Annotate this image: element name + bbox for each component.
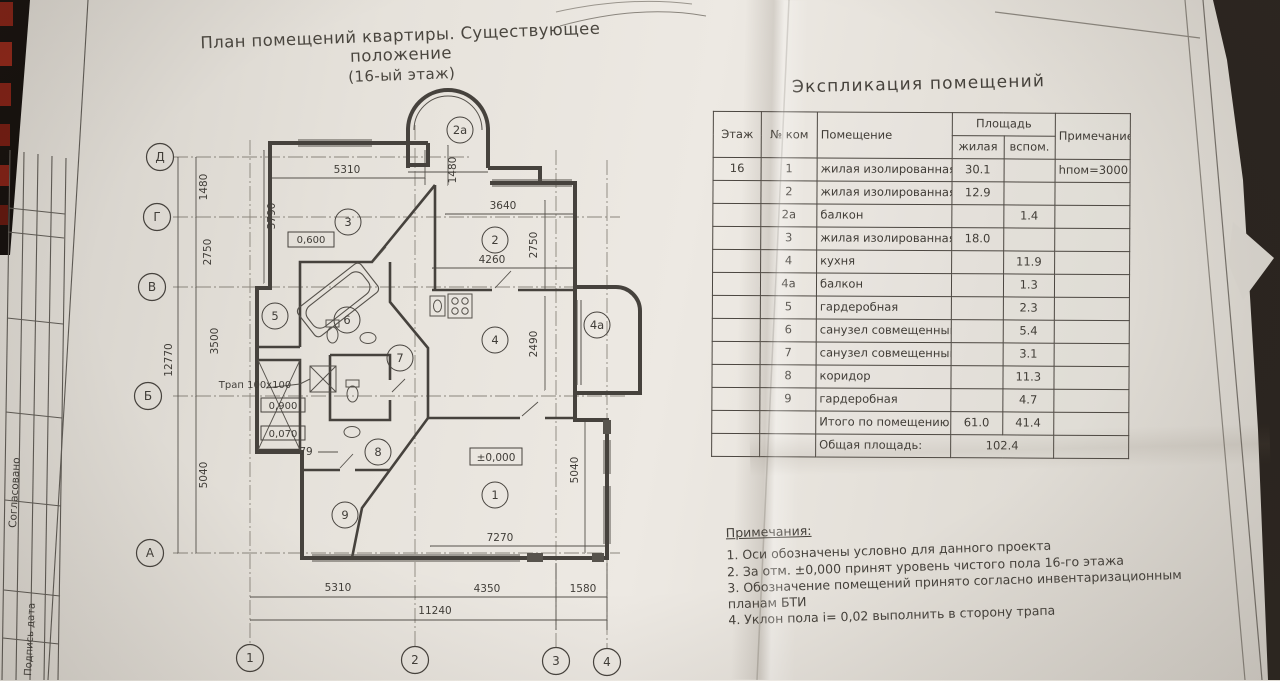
room-1-label: 1 <box>491 488 498 502</box>
cell-note <box>1055 251 1130 274</box>
cell-aux <box>1003 228 1055 251</box>
stamp-approved-label: Согласовано <box>7 457 23 528</box>
dim-left-1: 1480 <box>198 174 210 201</box>
cell-aux: 1.3 <box>1003 274 1055 297</box>
axis-col-3: 3 <box>552 654 560 668</box>
cell-room: жилая изолированная <box>817 158 952 182</box>
cell-living <box>951 389 1003 412</box>
cell-aux: 3.1 <box>1003 343 1055 366</box>
axis-col-1: 1 <box>246 651 254 665</box>
header-living: жилая <box>952 136 1004 159</box>
level-zero: ±0,000 <box>477 452 516 464</box>
cell-room: санузел совмещенный <box>816 342 951 366</box>
floor-plan: Д Г В Б А 1 2 3 4 3 2а 2 5 6 7 4 4а 8 <box>135 90 641 676</box>
wall-piers <box>527 420 611 562</box>
room-9-label: 9 <box>341 508 348 522</box>
room-6-label: 6 <box>343 313 350 327</box>
level-bath2: 0,070 <box>269 429 298 440</box>
cell-note <box>1054 366 1129 389</box>
cell-note <box>1054 389 1129 412</box>
room-2-label: 2 <box>491 233 498 247</box>
cell-note <box>1054 343 1129 366</box>
dim-right-h: 5040 <box>569 457 581 484</box>
cell-note: hпом=3000 <box>1055 159 1130 182</box>
dim-room3-depth: 3790 <box>266 203 278 230</box>
trap-label: Трап 100х100 <box>218 380 291 391</box>
room-5-label: 5 <box>271 309 278 323</box>
room-8-label: 8 <box>374 445 381 459</box>
dim-room2-h: 2750 <box>528 232 540 259</box>
cell-room: гардеробная <box>816 296 951 320</box>
cell-room: балкон <box>816 273 951 297</box>
cell-living: 12.9 <box>952 182 1004 205</box>
cell-room: гардеробная <box>816 388 951 412</box>
room-3-label: 3 <box>344 215 351 229</box>
header-room: Помещение <box>817 112 952 159</box>
dim-left-2: 2750 <box>202 239 214 266</box>
toilet-room7 <box>344 380 360 438</box>
cell-room: жилая изолированная <box>817 227 952 251</box>
dimension-labels: 12770 1480 2750 3500 5040 5310 1480 3790… <box>163 157 596 617</box>
dim-left-3: 3500 <box>209 328 221 355</box>
room-4a-label: 4а <box>590 318 604 332</box>
axis-row-v: В <box>148 280 156 294</box>
cell-room: балкон <box>817 204 952 228</box>
toilet-room6 <box>326 320 376 344</box>
room-2a-label: 2а <box>453 123 467 137</box>
dim-win2: 3640 <box>490 200 517 212</box>
cell-living <box>951 320 1003 343</box>
axis-col-4: 4 <box>603 655 611 669</box>
dim-bottom-total: 11240 <box>418 605 451 617</box>
level-bath: 0,900 <box>269 401 298 412</box>
kitchen-stove <box>430 294 472 318</box>
axis-col-2: 2 <box>411 653 419 667</box>
cell-aux: 5.4 <box>1003 320 1055 343</box>
dim-room2-w: 4260 <box>479 254 506 266</box>
axis-row-b: Б <box>144 389 152 403</box>
header-area: Площадь <box>952 113 1055 137</box>
cell-living: 18.0 <box>952 228 1004 251</box>
room-bubbles <box>262 117 610 528</box>
cell-note <box>1054 297 1129 320</box>
notes-block: Примечания: 1. Оси обозначены условно дл… <box>726 511 1229 629</box>
cell-aux: 11.3 <box>1002 366 1054 389</box>
axis-bubble-labels: Д Г В Б А 1 2 3 4 <box>144 150 611 669</box>
level-hall: 0,600 <box>297 235 326 246</box>
cell-aux <box>1003 182 1055 205</box>
cell-living <box>951 366 1003 389</box>
dim-left-total: 12770 <box>163 343 175 376</box>
cell-note <box>1055 182 1130 205</box>
cell-living <box>952 251 1004 274</box>
cell-room: коридор <box>816 365 951 389</box>
cell-aux: 4.7 <box>1002 389 1054 412</box>
stamp-sign-date-label: Подпись дата <box>23 603 38 677</box>
axis-bubbles <box>135 144 621 676</box>
cell-living <box>951 274 1003 297</box>
cell-room: кухня <box>817 250 952 274</box>
cell-note <box>1055 205 1130 228</box>
header-aux: вспом. <box>1004 136 1056 159</box>
dim-bottom-1: 5310 <box>325 582 352 594</box>
axis-row-d: Д <box>155 150 164 164</box>
dim-top-vert: 1480 <box>447 157 459 184</box>
cell-note <box>1054 320 1129 343</box>
cell-aux: 11.9 <box>1003 251 1055 274</box>
cell-living <box>952 205 1004 228</box>
cell-aux: 1.4 <box>1003 205 1055 228</box>
dim-top-width: 5310 <box>334 164 361 176</box>
dim-left-4: 5040 <box>198 462 210 489</box>
header-note: Примечание <box>1055 113 1130 159</box>
cell-aux: 2.3 <box>1003 297 1055 320</box>
cell-living: 30.1 <box>952 159 1004 182</box>
axis-row-g: Г <box>153 210 160 224</box>
cell-room: жилая изолированная <box>817 181 952 205</box>
cell-note <box>1055 228 1130 251</box>
dim-kitchen-h: 2490 <box>528 331 540 358</box>
cell-living <box>951 343 1003 366</box>
binding-edge <box>0 0 30 255</box>
cell-note <box>1054 274 1129 297</box>
axis-row-a: А <box>146 546 155 560</box>
photographed-floor-plan-document: { "photo": { "desk_color": "#2a241f", "p… <box>0 0 1280 680</box>
dim-room1-w: 7270 <box>487 532 514 544</box>
cell-room: санузел совмещенный <box>816 319 951 343</box>
cell-aux <box>1004 159 1056 182</box>
room-4-label: 4 <box>491 333 498 347</box>
room-7-label: 7 <box>396 351 403 365</box>
cell-living <box>951 297 1003 320</box>
door-leaves <box>340 247 538 468</box>
dim-bottom-3: 1580 <box>570 583 597 595</box>
dim-bottom-2: 4350 <box>474 583 501 595</box>
dim-step: 79 <box>299 446 312 458</box>
